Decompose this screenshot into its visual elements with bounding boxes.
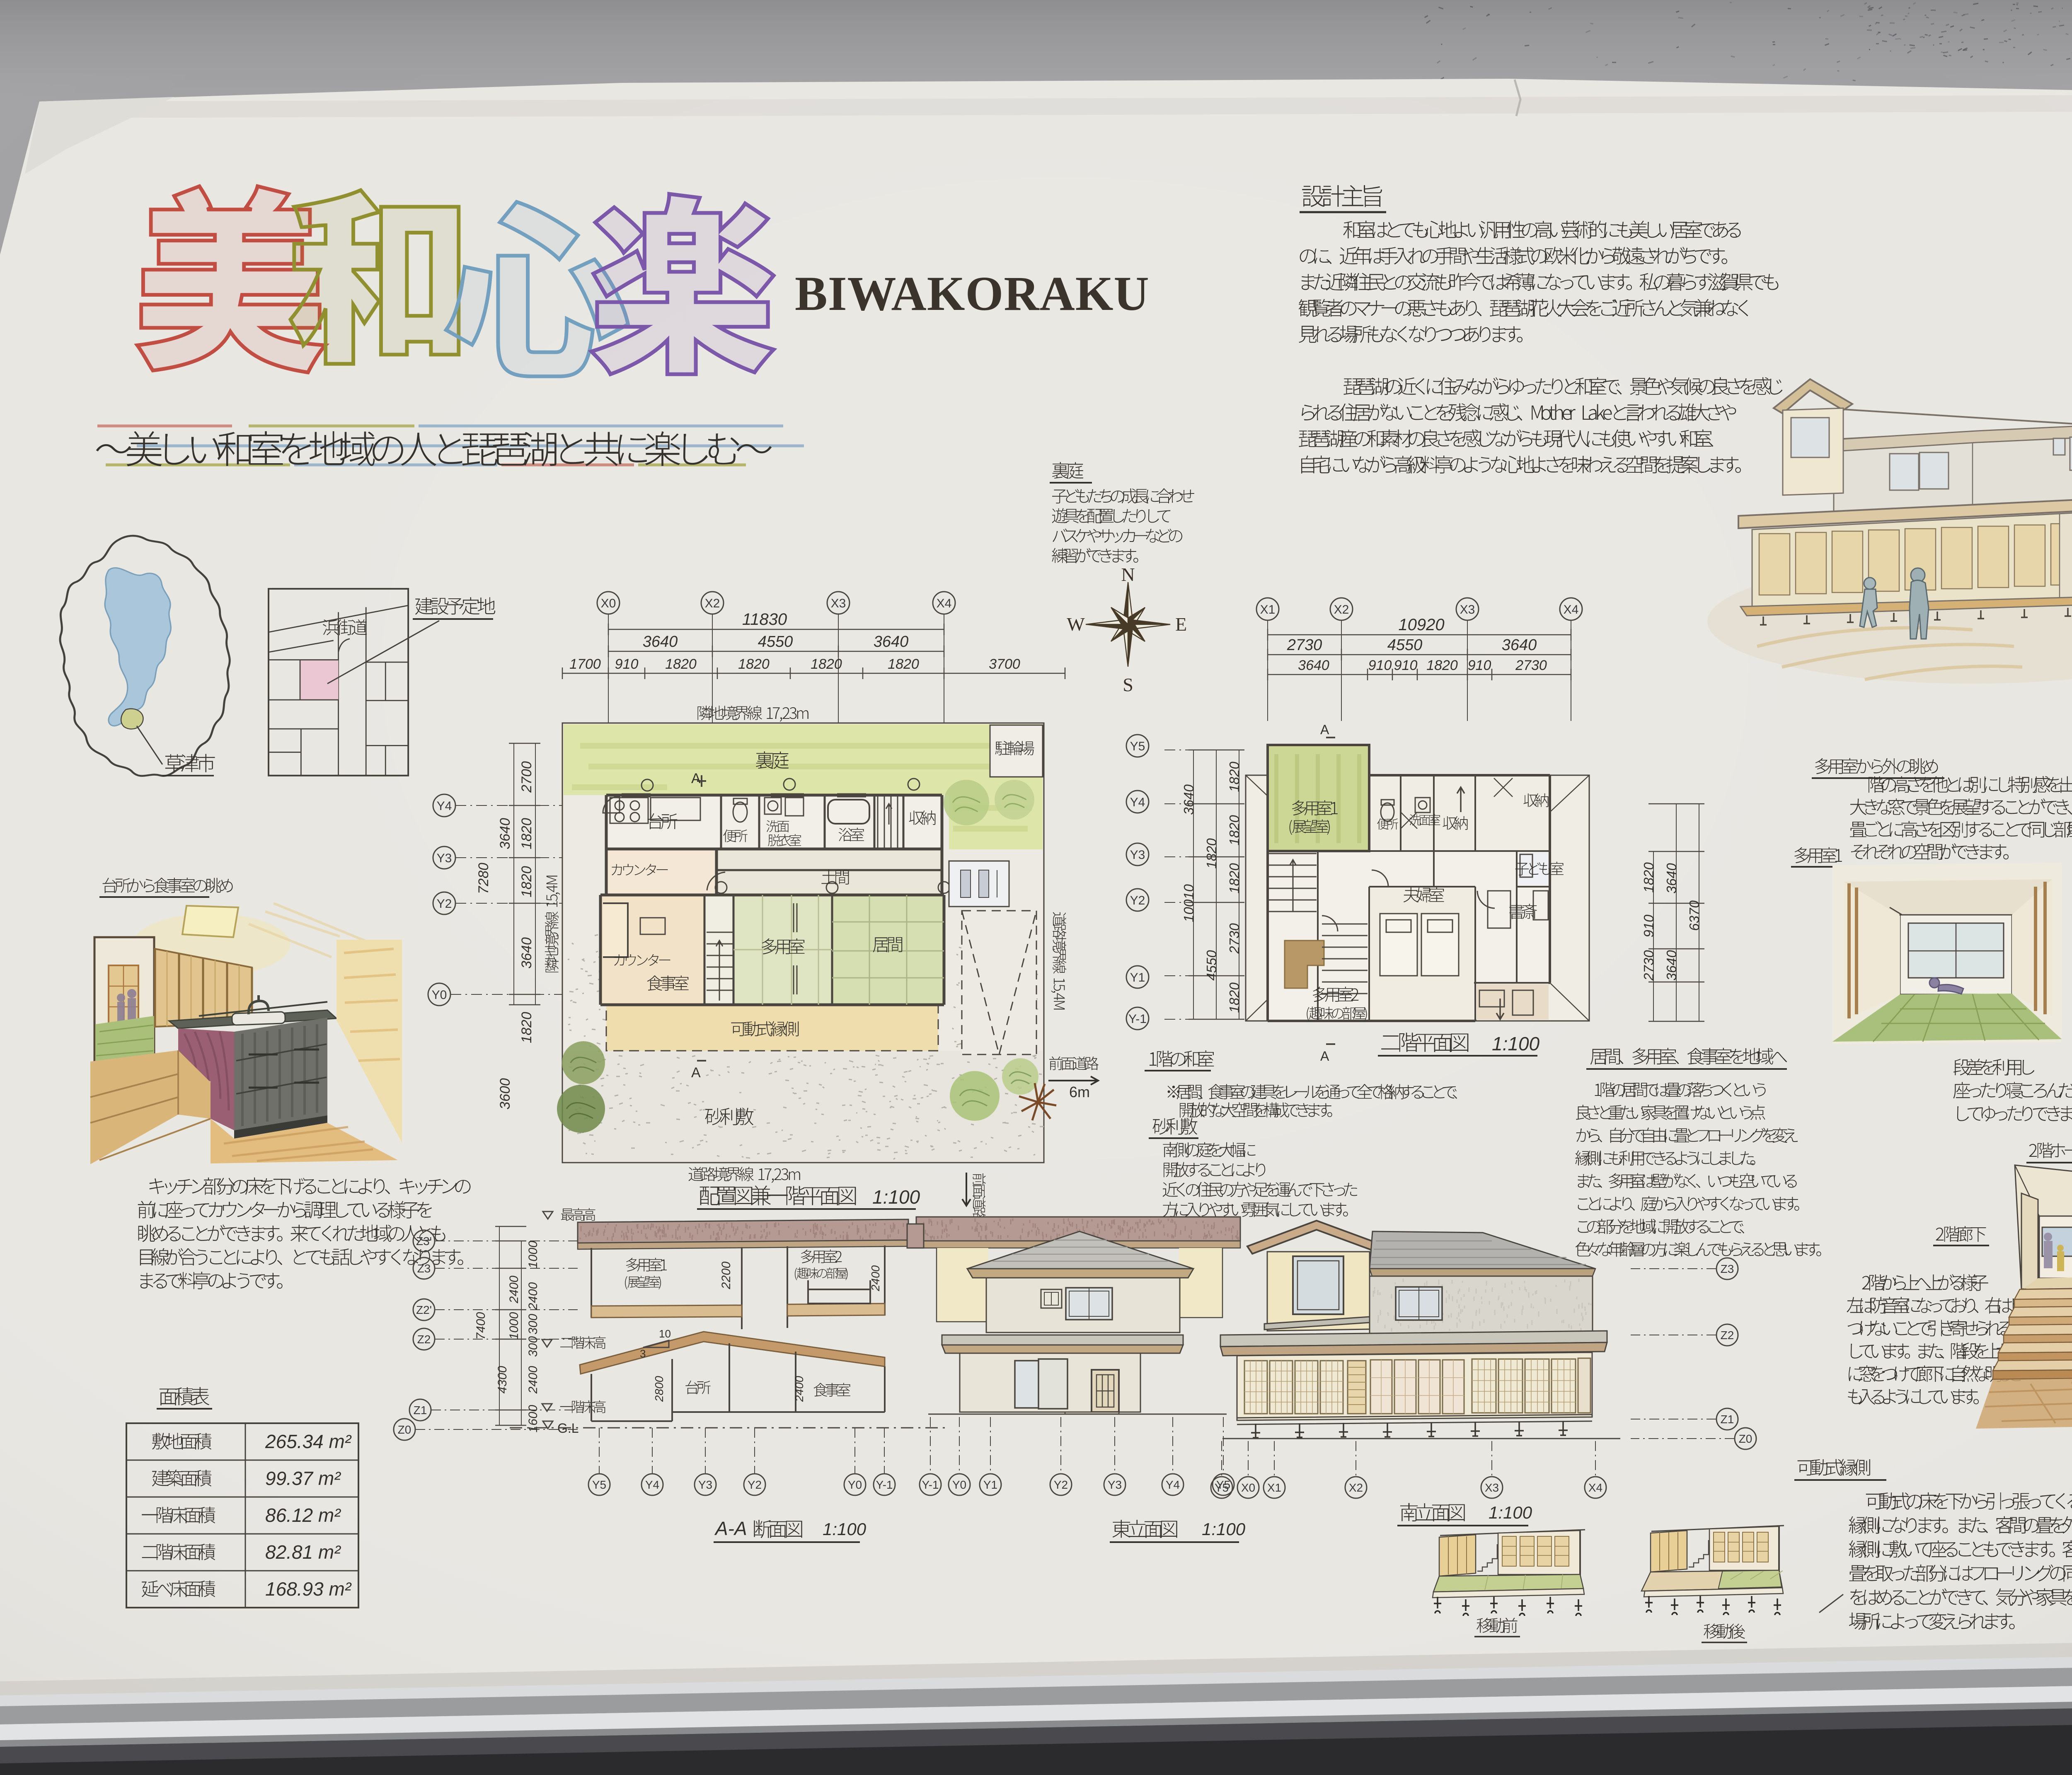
svg-text:Y5: Y5 [1130,740,1145,753]
svg-text:4550: 4550 [758,633,793,651]
svg-text:2400: 2400 [869,1265,882,1291]
svg-text:2800: 2800 [653,1376,666,1402]
svg-text:X3: X3 [831,597,846,610]
svg-text:4550: 4550 [1387,636,1423,654]
svg-text:X3: X3 [1485,1481,1499,1494]
svg-text:X4: X4 [937,597,952,610]
svg-text:11830: 11830 [742,610,787,629]
svg-text:1:100: 1:100 [872,1186,920,1208]
svg-text:2400: 2400 [507,1275,521,1303]
svg-text:Y0: Y0 [952,1478,966,1491]
svg-text:3640: 3640 [519,937,535,969]
svg-text:3640: 3640 [1664,863,1679,894]
svg-text:S: S [1123,674,1133,695]
svg-text:1:100: 1:100 [823,1519,867,1539]
svg-text:A: A [1320,722,1329,737]
svg-text:Z3: Z3 [1721,1262,1734,1275]
svg-text:1000: 1000 [526,1241,540,1268]
svg-text:3640: 3640 [1298,658,1329,673]
svg-text:Y5: Y5 [1215,1481,1229,1494]
svg-text:910: 910 [1394,658,1418,673]
svg-text:BIWAKORAKU: BIWAKORAKU [795,266,1150,321]
svg-text:Y5: Y5 [592,1478,606,1491]
svg-text:Y4: Y4 [645,1478,659,1491]
svg-text:A: A [691,771,701,786]
svg-text:1820: 1820 [811,656,842,672]
svg-text:2730: 2730 [1227,923,1242,954]
svg-text:A: A [691,1065,701,1081]
svg-text:1820: 1820 [1227,815,1242,846]
svg-text:X2: X2 [1349,1481,1363,1494]
svg-text:1820: 1820 [888,656,919,672]
svg-text:300: 300 [526,1314,540,1335]
svg-text:1820: 1820 [1426,658,1458,673]
svg-text:Y2: Y2 [1054,1478,1068,1491]
svg-text:3640: 3640 [1664,950,1679,981]
svg-text:6370: 6370 [1687,900,1702,931]
svg-text:10: 10 [659,1328,671,1340]
svg-text:Z2: Z2 [1721,1329,1734,1342]
svg-text:265.34 m²: 265.34 m² [265,1431,352,1452]
svg-text:1820: 1820 [665,656,697,672]
svg-text:10920: 10920 [1398,616,1444,634]
svg-text:3: 3 [640,1347,646,1360]
svg-text:1700: 1700 [569,656,601,672]
svg-text:Y3: Y3 [1108,1478,1122,1491]
svg-text:Y2: Y2 [1130,894,1145,907]
svg-text:X1: X1 [1267,1481,1281,1494]
svg-text:1000: 1000 [507,1312,521,1340]
svg-text:4550: 4550 [1204,950,1219,981]
svg-text:1:100: 1:100 [1489,1503,1532,1522]
svg-text:X2: X2 [705,597,720,610]
svg-text:1820: 1820 [519,866,535,897]
svg-text:910: 910 [1641,914,1656,938]
svg-text:Y-1: Y-1 [922,1478,939,1491]
svg-text:3640: 3640 [1181,784,1196,815]
svg-text:X0: X0 [1241,1481,1255,1494]
svg-text:82.81 m²: 82.81 m² [265,1541,341,1563]
svg-text:6m: 6m [1069,1083,1090,1100]
svg-text:X4: X4 [1588,1481,1602,1494]
svg-text:3640: 3640 [874,633,909,651]
svg-text:2400: 2400 [526,1282,540,1310]
svg-text:4300: 4300 [496,1366,509,1393]
svg-text:Y1: Y1 [1130,971,1145,984]
svg-text:2730: 2730 [1287,636,1322,654]
svg-text:Z2': Z2' [416,1303,432,1316]
svg-text:86.12 m²: 86.12 m² [265,1504,341,1526]
svg-text:Z3': Z3' [416,1235,432,1248]
svg-text:X1: X1 [1260,603,1276,617]
svg-text:2400: 2400 [526,1366,540,1394]
svg-text:910: 910 [1468,658,1491,673]
svg-text:1820: 1820 [1204,838,1219,869]
svg-text:Y3: Y3 [1130,848,1145,862]
svg-text:Y2: Y2 [748,1478,762,1491]
svg-text:910: 910 [615,656,639,672]
svg-text:1820: 1820 [519,818,535,849]
svg-text:Z0: Z0 [398,1423,411,1436]
svg-text:1820: 1820 [738,656,770,672]
svg-text:1820: 1820 [1227,982,1242,1013]
svg-text:A-A: A-A [714,1518,747,1539]
svg-text:2700: 2700 [519,761,535,793]
svg-text:1820: 1820 [1227,863,1242,894]
svg-text:Z1: Z1 [414,1404,427,1417]
svg-text:3640: 3640 [1502,636,1537,654]
svg-text:168.93 m²: 168.93 m² [265,1578,352,1600]
svg-text:Y4: Y4 [437,799,452,813]
svg-text:Z3: Z3 [417,1262,431,1275]
svg-text:2730: 2730 [1515,658,1547,673]
svg-text:E: E [1175,614,1187,635]
svg-text:Y4: Y4 [1130,796,1145,809]
svg-text:X2: X2 [1334,603,1349,617]
svg-text:X0: X0 [601,597,616,610]
svg-text:Z0: Z0 [1739,1432,1752,1445]
svg-text:2730: 2730 [1641,950,1656,981]
svg-text:1:100: 1:100 [1492,1033,1540,1054]
svg-text:Y0: Y0 [432,988,447,1002]
svg-text:W: W [1067,614,1085,635]
svg-text:Y0: Y0 [848,1478,862,1491]
svg-text:Y4: Y4 [1166,1478,1180,1491]
svg-text:Y-1: Y-1 [1128,1012,1147,1026]
svg-text:Y-1: Y-1 [876,1478,893,1491]
svg-text:3640: 3640 [497,818,513,849]
svg-text:7400: 7400 [474,1312,488,1340]
svg-text:10010: 10010 [1181,884,1196,922]
svg-text:Z1: Z1 [1721,1413,1734,1426]
svg-text:7280: 7280 [476,863,491,894]
svg-text:1:100: 1:100 [1202,1519,1246,1539]
svg-text:1820: 1820 [1641,862,1656,893]
svg-text:300: 300 [526,1336,540,1357]
svg-text:1820: 1820 [1227,762,1242,792]
svg-text:3640: 3640 [643,633,678,651]
svg-text:N: N [1121,564,1135,585]
svg-text:Y1: Y1 [983,1478,997,1491]
svg-text:2400: 2400 [793,1376,806,1402]
svg-text:99.37 m²: 99.37 m² [265,1468,341,1489]
svg-text:Z2: Z2 [417,1333,431,1346]
svg-text:910: 910 [1368,658,1392,673]
svg-text:3600: 3600 [497,1078,513,1110]
svg-text:X3: X3 [1460,603,1475,617]
svg-text:X4: X4 [1564,603,1579,617]
svg-text:Y2: Y2 [437,897,452,911]
svg-text:Y3: Y3 [437,851,452,865]
svg-text:2200: 2200 [719,1261,733,1289]
svg-text:1820: 1820 [519,1012,535,1043]
svg-text:Y3: Y3 [698,1478,712,1491]
svg-text:3700: 3700 [989,656,1020,672]
svg-text:A: A [1320,1049,1329,1064]
